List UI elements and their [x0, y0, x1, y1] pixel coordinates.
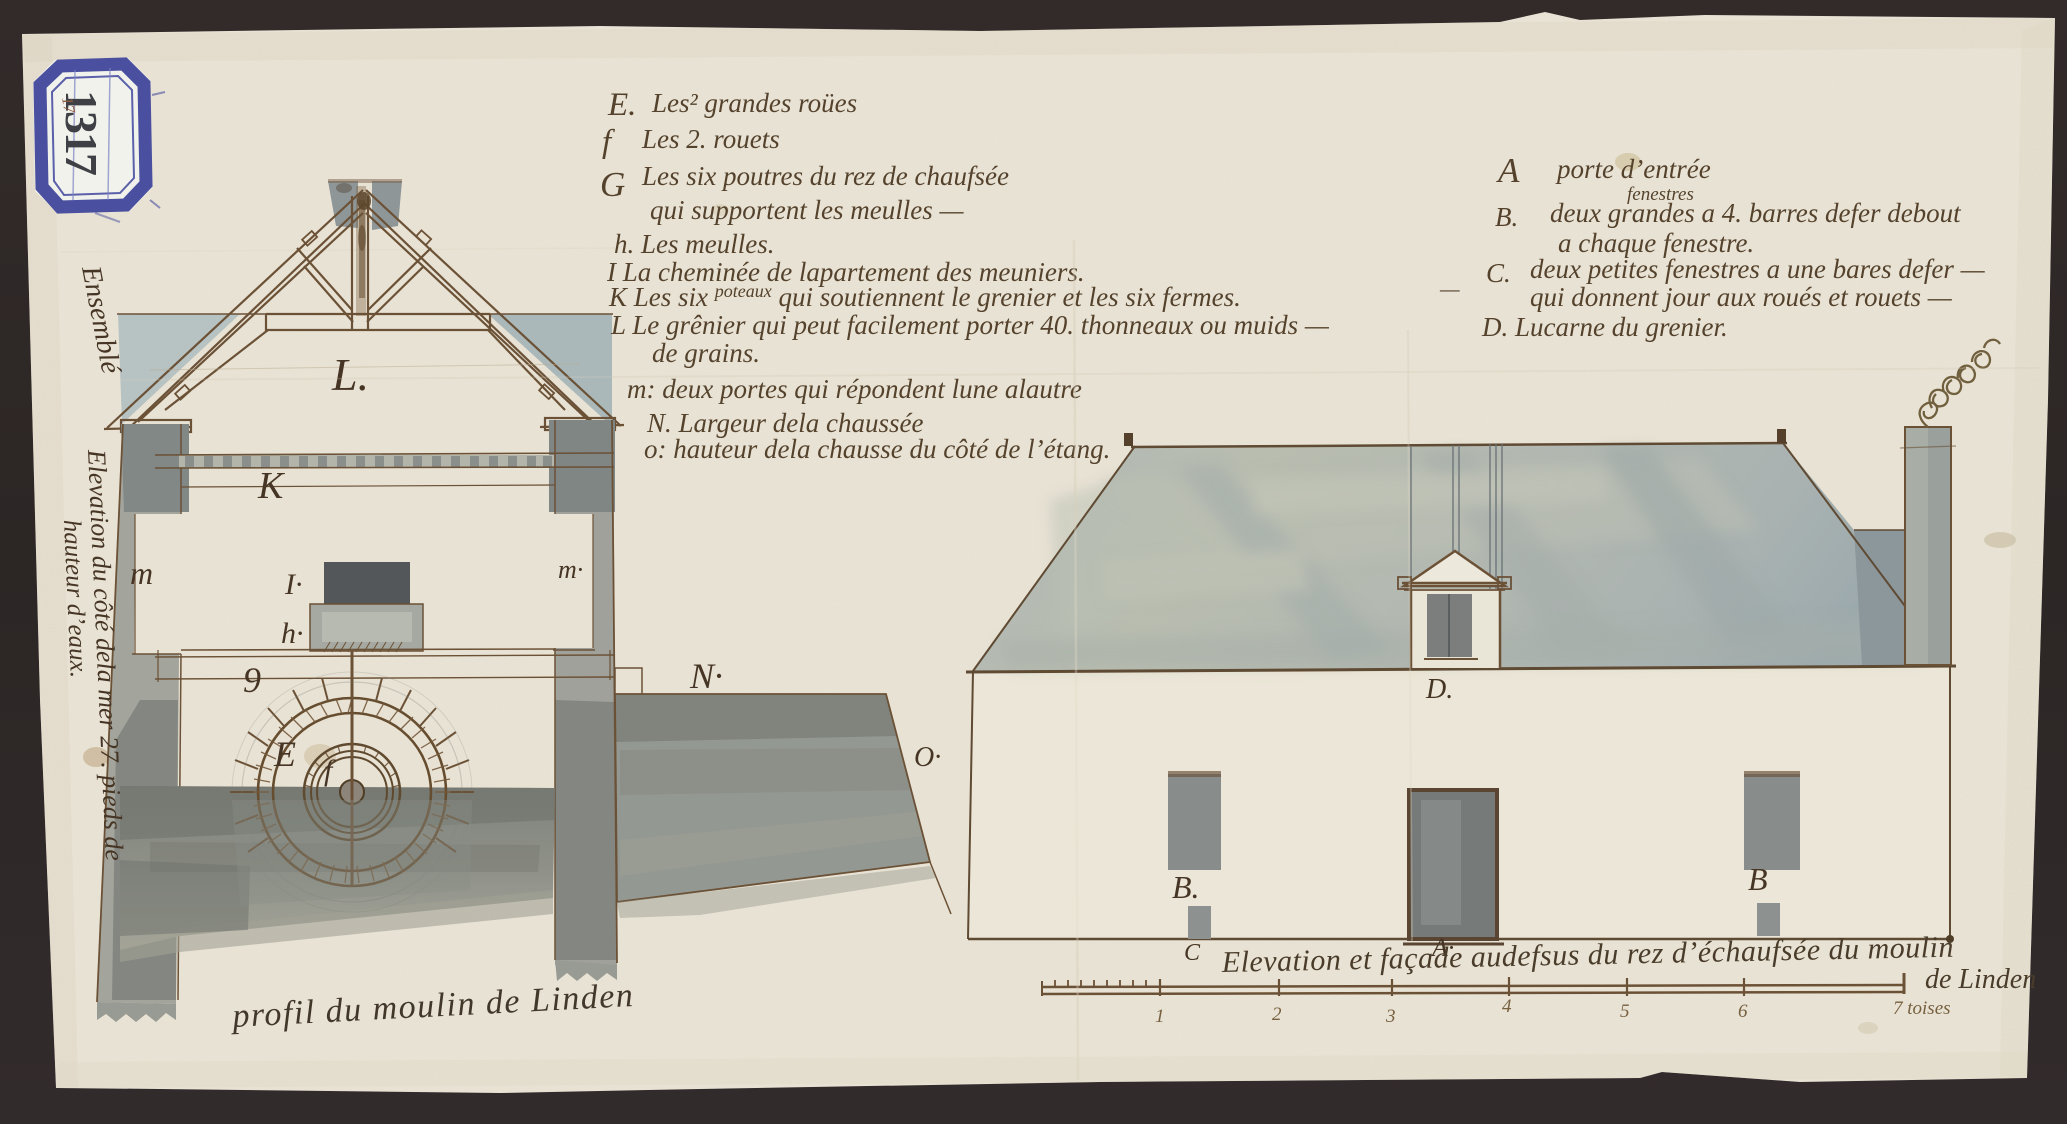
svg-text:K Les six poteaux qui soutienn: K Les six poteaux qui soutiennent le gre… [608, 281, 1241, 312]
svg-text:porte d’entrée: porte d’entrée [1555, 154, 1711, 184]
svg-text:N·: N· [689, 656, 723, 696]
svg-text:K: K [257, 465, 285, 507]
svg-text:D. Lucarne du grenier.: D. Lucarne du grenier. [1481, 312, 1728, 342]
svg-text:de grains.: de grains. [652, 338, 760, 368]
svg-text:3: 3 [1385, 1006, 1396, 1027]
svg-text:D.: D. [1425, 674, 1453, 705]
svg-text:5: 5 [1620, 1001, 1630, 1022]
svg-text:B: B [1748, 861, 1768, 897]
svg-text:A: A [1496, 151, 1520, 190]
svg-text:Les six poutres du rez de chau: Les six poutres du rez de chaufsée [641, 161, 1009, 191]
svg-text:Les 2. rouets: Les 2. rouets [641, 124, 780, 154]
svg-text:G: G [600, 165, 625, 204]
svg-text:fenestres: fenestres [1627, 184, 1694, 205]
svg-text:m: m [130, 555, 153, 591]
svg-text:6: 6 [1738, 1001, 1748, 1022]
svg-text:9: 9 [243, 660, 261, 700]
svg-text:de Linden: de Linden [1925, 964, 2036, 995]
svg-text:B.: B. [1172, 869, 1200, 905]
svg-text:2: 2 [1272, 1004, 1282, 1025]
svg-text:I·: I· [284, 568, 303, 601]
svg-text:qui donnent jour aux roués et: qui donnent jour aux roués et rouets — [1530, 282, 1953, 312]
svg-text:E.: E. [607, 87, 636, 123]
svg-text:O·: O· [914, 742, 941, 773]
svg-text:4: 4 [1502, 996, 1512, 1017]
svg-text:h·: h· [281, 617, 304, 650]
svg-text:m·: m· [558, 555, 583, 584]
svg-text:C: C [1184, 940, 1201, 966]
svg-text:qui supportent les meulles —: qui supportent les meulles — [650, 195, 964, 225]
svg-text:C.: C. [1486, 258, 1511, 288]
svg-text:E: E [273, 734, 296, 774]
svg-text:L.: L. [331, 349, 369, 400]
svg-text:B.: B. [1495, 202, 1518, 232]
svg-text:deux petites fenestres a une b: deux petites fenestres a une bares defer… [1530, 254, 1986, 284]
svg-text:Les² grandes roües: Les² grandes roües [651, 88, 857, 118]
svg-text:o: hauteur dela chausse du côt: o: hauteur dela chausse du côté de l’éta… [644, 434, 1110, 464]
svg-text:7 toises: 7 toises [1893, 998, 1951, 1019]
svg-text:m: deux portes qui répondent l: m: deux portes qui répondent lune alautr… [627, 374, 1082, 404]
svg-text:L Le grênier qui peut facileme: L Le grênier qui peut facilement porter … [610, 310, 1330, 340]
svg-text:—: — [1439, 276, 1460, 301]
svg-text:deux grandes a 4. barres defer: deux grandes a 4. barres defer debout [1550, 198, 1962, 228]
svg-text:h. Les meulles.: h. Les meulles. [614, 229, 774, 259]
svg-text:1: 1 [1155, 1006, 1165, 1027]
